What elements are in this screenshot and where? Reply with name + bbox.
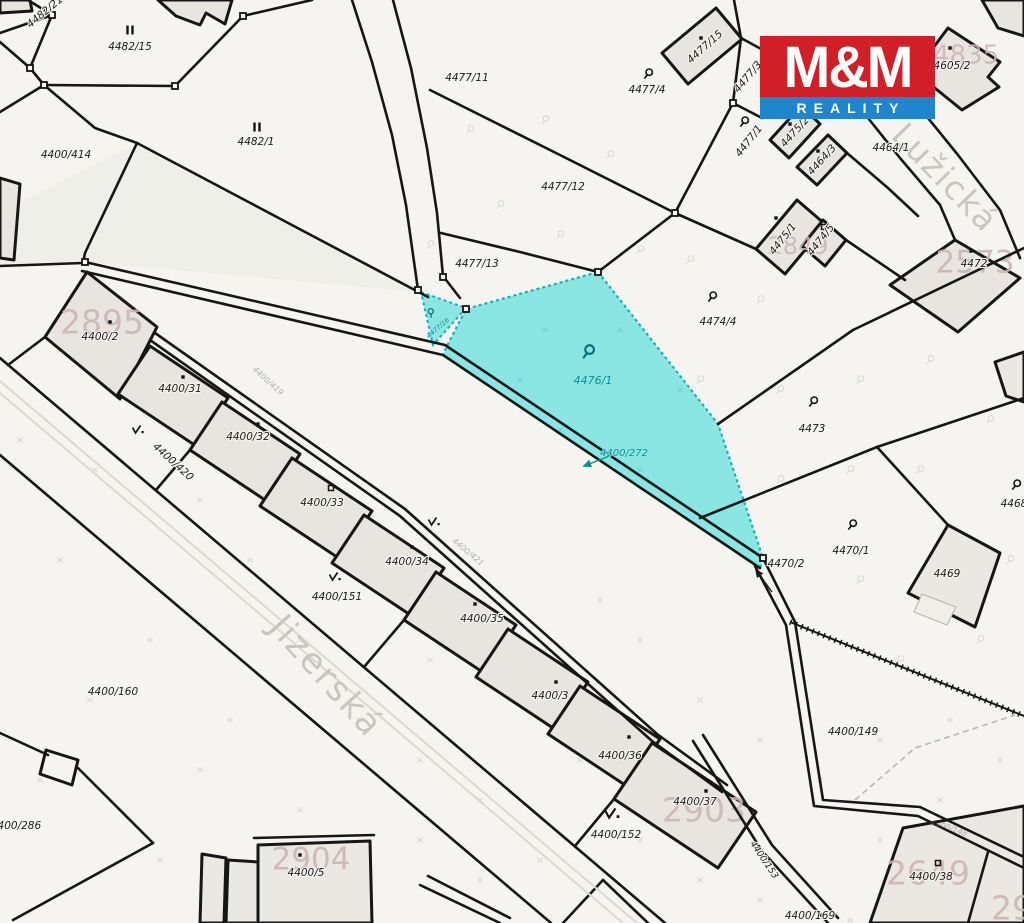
highlighted-parcel-label: 4400/272 — [600, 448, 648, 459]
parcel-label: 4473 — [799, 423, 826, 435]
building-dot-icon — [816, 149, 819, 152]
parcel-label: 4470/2 — [768, 558, 805, 570]
building-dot-icon — [774, 216, 777, 219]
parcel-label: 4400/169 — [785, 910, 836, 922]
parcel-label: 4400/149 — [828, 726, 879, 738]
boundary-vertex-icon — [730, 100, 736, 106]
parcel-label: 4605/2 — [934, 60, 971, 72]
mm-logo-subtext: REALITY — [790, 100, 906, 116]
building-footprint — [226, 860, 258, 923]
parcel-label: 4477/4 — [629, 84, 666, 96]
building-dot-icon — [410, 545, 413, 548]
parcel-label: 4400/34 — [385, 556, 429, 568]
parcel-label: 4400/286 — [0, 820, 41, 832]
parcel-label: 4400/36 — [598, 750, 642, 762]
parcel-label: 4469 — [934, 568, 961, 580]
boundary-vertex-icon — [672, 210, 678, 216]
parcel-label: 4477/13 — [455, 258, 499, 270]
boundary-vertex-icon — [760, 555, 766, 561]
parcel-label: 4400/151 — [312, 591, 362, 603]
parcel-label: 4400/5 — [288, 867, 325, 879]
parcel-label: 4400/414 — [41, 149, 91, 161]
boundary-vertex-icon — [463, 306, 469, 312]
building-number: 29 — [991, 889, 1024, 923]
building-footprint — [200, 854, 226, 923]
building-dot-icon — [181, 375, 184, 378]
parcel-label: 4472 — [961, 258, 988, 270]
parcel-label: 4474/4 — [700, 316, 737, 328]
building-dot-icon — [948, 46, 951, 49]
building-dot-icon — [699, 36, 702, 39]
parcel-label: 4477/12 — [541, 181, 585, 193]
building-footprint — [0, 0, 32, 13]
boundary-vertex-icon — [415, 287, 421, 293]
parcel-label: 4400/3 — [532, 690, 569, 702]
building-dot-icon — [788, 122, 791, 125]
cadastral-map-screenshot: 289529032904264925732849483529JizerskáLu… — [0, 0, 1024, 923]
boundary-vertex-icon — [595, 269, 601, 275]
building-dot-icon — [298, 853, 301, 856]
parcel-label: 4400/37 — [673, 796, 717, 808]
building-dot-icon — [969, 249, 972, 252]
boundary-vertex-icon — [82, 259, 88, 265]
boundary-vertex-icon — [240, 13, 246, 19]
parcel-label: 4464/1 — [873, 142, 910, 154]
parcel-label: 4400/160 — [88, 686, 139, 698]
mm-logo-mark: M&M — [760, 36, 935, 97]
building-dot-icon — [704, 789, 707, 792]
building-dot-icon — [108, 320, 111, 323]
parcel-label: 4400/31 — [158, 383, 202, 395]
parcel-label: 4400/38 — [909, 871, 953, 883]
building-dot-icon — [554, 680, 557, 683]
highlighted-parcel-label: 4476/1 — [574, 374, 613, 387]
mm-logo-text: M&M — [784, 36, 912, 97]
boundary-vertex-icon — [172, 83, 178, 89]
parcel-label: 4400/152 — [591, 829, 642, 841]
parcel-label: 4482/1 — [238, 136, 275, 148]
parcel-label: 4470/1 — [833, 545, 870, 557]
boundary-vertex-icon — [41, 82, 47, 88]
cadastral-map[interactable]: 289529032904264925732849483529JizerskáLu… — [0, 0, 1024, 923]
boundary-vertex-icon — [27, 65, 33, 71]
parcel-label: 4400/33 — [300, 497, 344, 509]
boundary-vertex-icon — [440, 274, 446, 280]
map-background — [0, 0, 1024, 923]
parcel-label: 4468 — [1001, 498, 1024, 510]
mm-reality-logo: M&M REALITY — [760, 36, 935, 119]
mm-logo-band: REALITY — [760, 97, 935, 119]
parcel-label: 4400/35 — [460, 613, 504, 625]
parcel-label: 4477/11 — [445, 72, 489, 84]
parcel-label: 4482/15 — [108, 41, 152, 53]
parcel-label: 4400/2 — [82, 331, 119, 343]
parcel-label: 4400/32 — [226, 431, 270, 443]
building-dot-icon — [256, 422, 259, 425]
building-dot-icon — [627, 735, 630, 738]
building-dot-icon — [473, 602, 476, 605]
